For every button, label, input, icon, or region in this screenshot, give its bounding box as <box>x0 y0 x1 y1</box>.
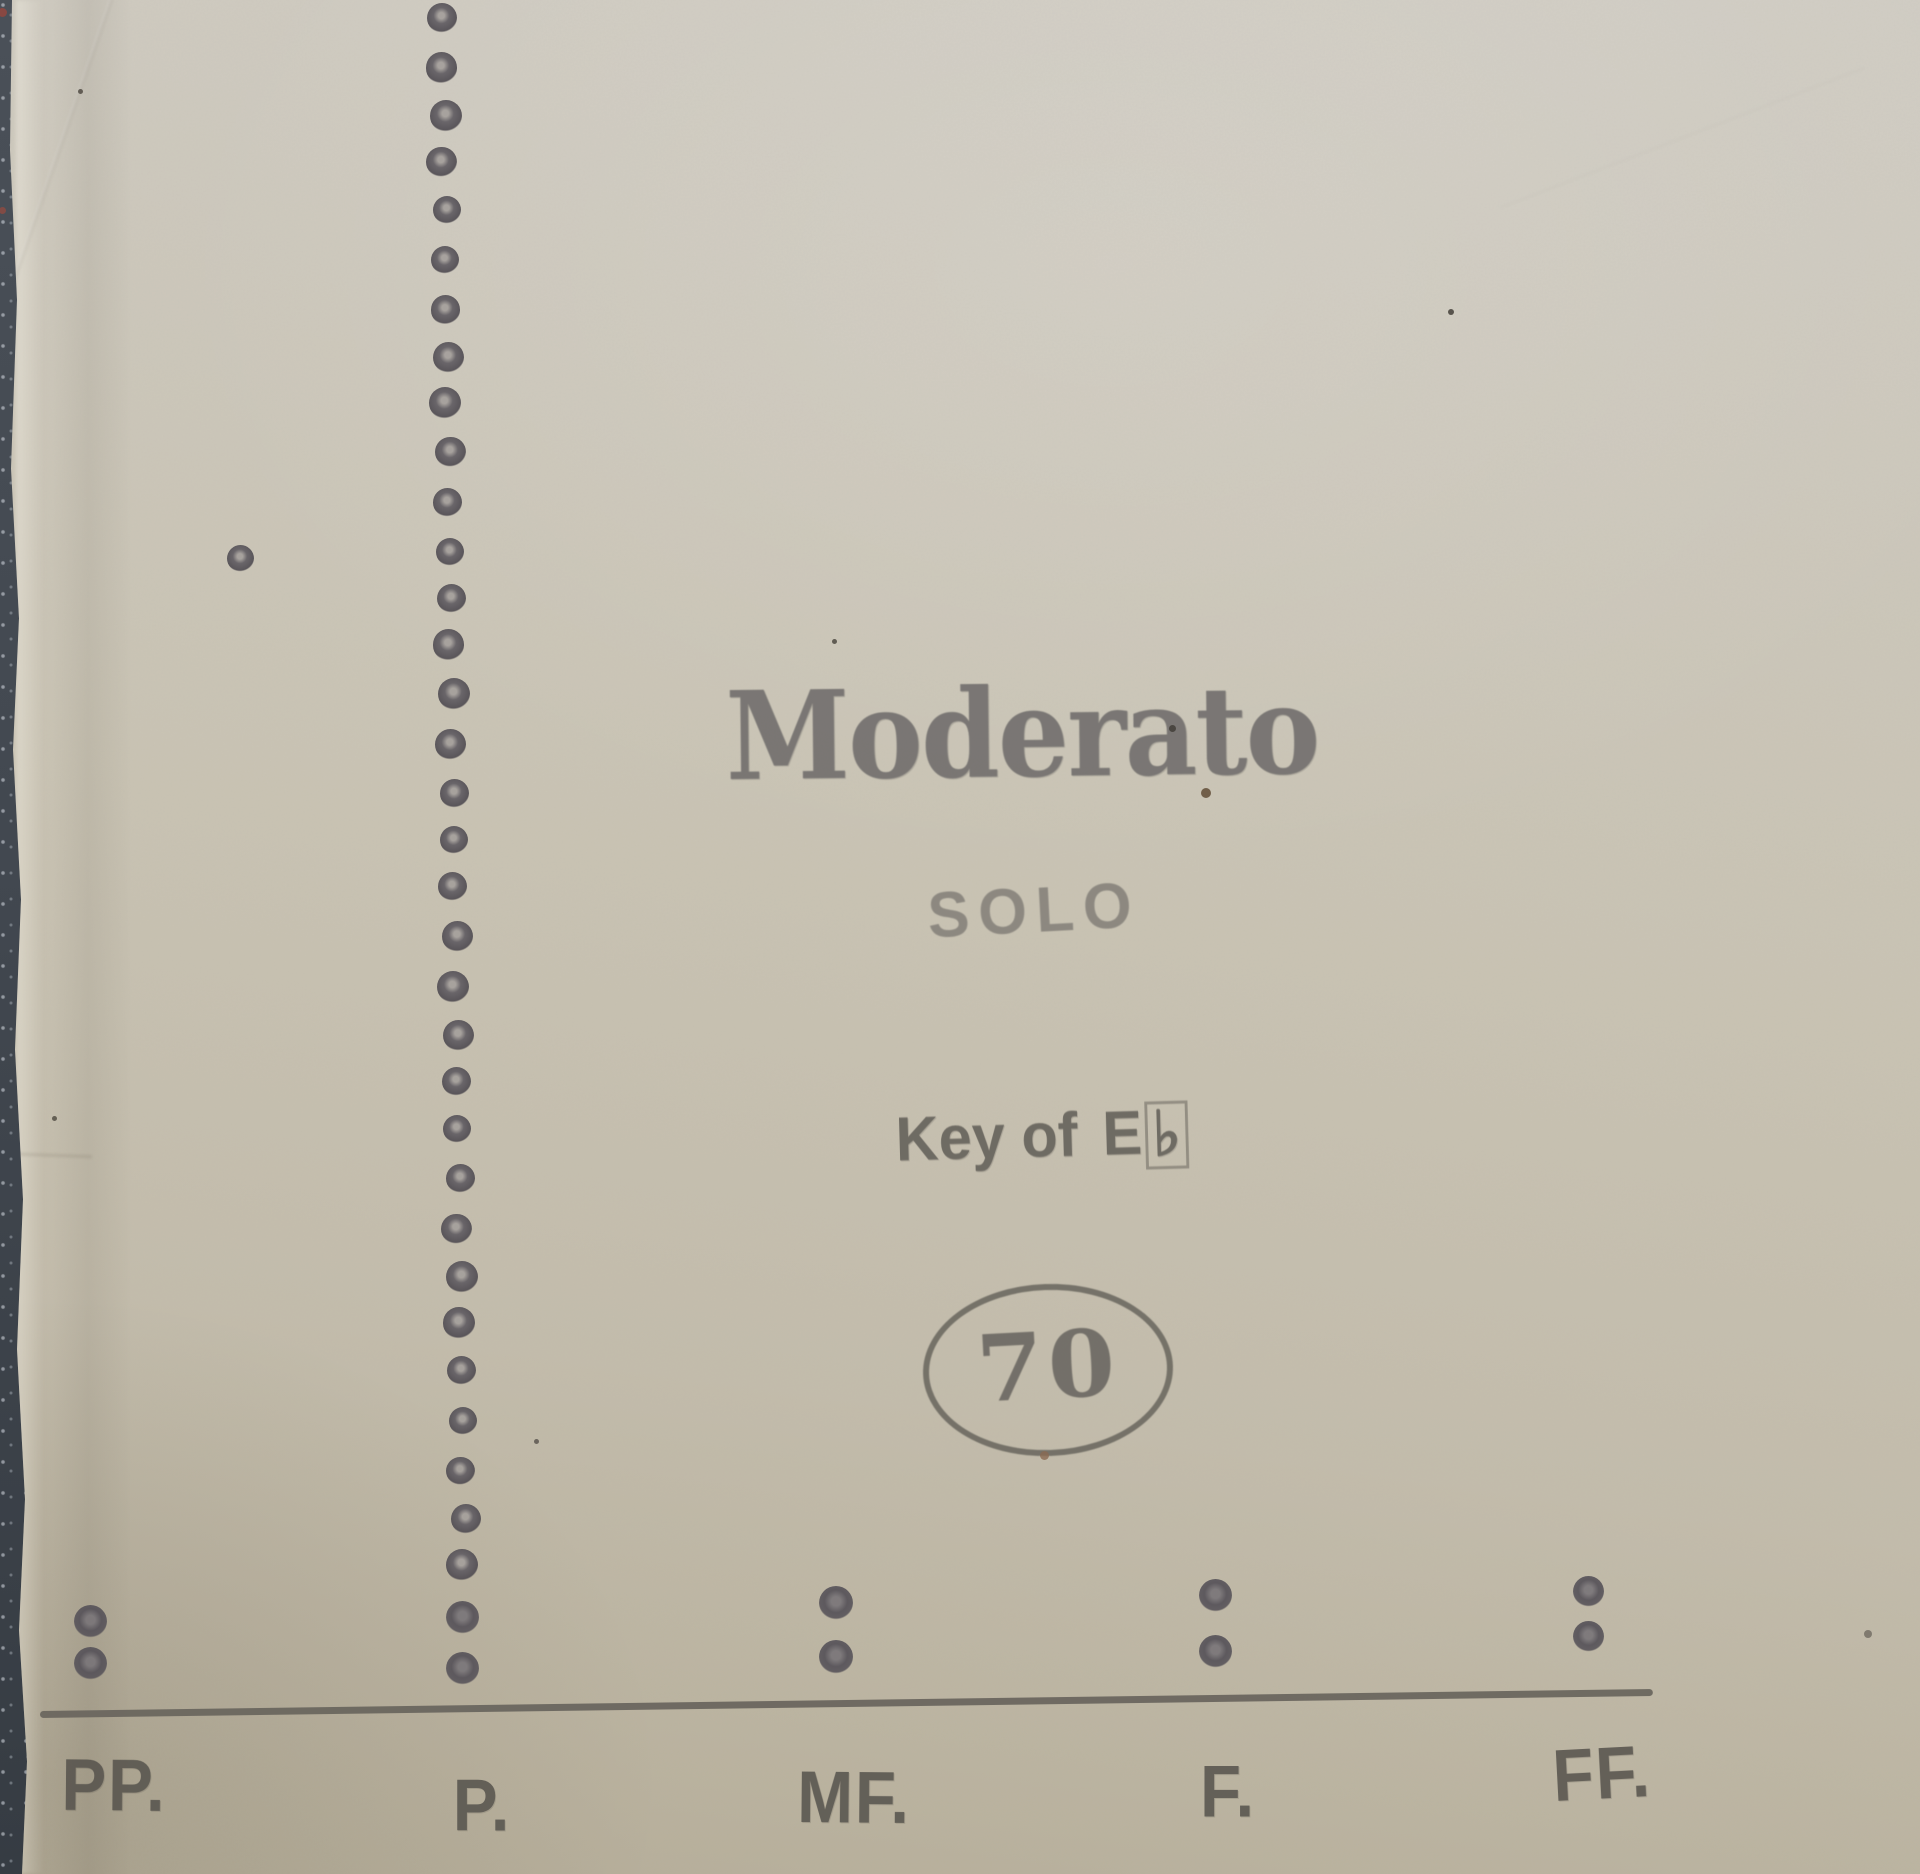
perforation-dot <box>440 779 469 808</box>
flat-glyph: ♭ <box>1152 1100 1182 1170</box>
perforation-dot <box>433 342 464 373</box>
paper-speck <box>534 1439 539 1444</box>
perforation-dot <box>429 387 461 419</box>
key-note-letter: E <box>1101 1099 1143 1169</box>
dynamics-label-pp: PP. <box>61 1744 167 1828</box>
perforation-dot <box>440 826 468 854</box>
dynamics-colon-dot <box>1573 1621 1604 1652</box>
perforation-dot <box>433 488 462 517</box>
stray-perforation-dot <box>227 545 254 572</box>
perforation-dot <box>443 1020 474 1051</box>
perforation-dot <box>438 872 467 901</box>
perforation-dot <box>449 1407 477 1435</box>
perforation-dot <box>426 52 458 84</box>
paper-speck <box>1864 1630 1872 1638</box>
perforation-dot <box>433 196 461 224</box>
perforation-dot <box>436 538 464 566</box>
edge-red-mark <box>0 207 6 214</box>
roll-number: 70 <box>974 1316 1122 1423</box>
dynamics-colon-dot <box>1573 1576 1604 1607</box>
edge-red-mark <box>0 8 7 17</box>
tempo-stamp: Moderato <box>725 658 1319 808</box>
dynamics-colon-dot <box>1199 1579 1232 1612</box>
perforation-dot <box>430 100 462 132</box>
perforation-dot <box>441 1214 472 1245</box>
perforation-dot <box>447 1356 477 1386</box>
perforation-dot <box>443 1307 474 1338</box>
perforation-dot <box>446 1164 475 1193</box>
perforation-dot <box>443 1115 471 1143</box>
vertical-fold-shading <box>52 0 132 1874</box>
perforation-dot <box>442 1067 471 1096</box>
perforation-dot <box>435 437 466 468</box>
perforation-dot <box>431 246 459 274</box>
perforation-dot <box>438 678 470 710</box>
perforation-dot <box>446 1549 478 1581</box>
key-prefix-text: Key of <box>895 1101 1079 1175</box>
paper-speck <box>1448 309 1454 315</box>
perforation-dot <box>427 3 457 33</box>
dynamics-colon-dot <box>819 1640 853 1674</box>
flat-sign: ♭ <box>1144 1100 1189 1169</box>
perforation-dot <box>426 147 456 177</box>
perforation-dot <box>437 971 469 1003</box>
paper-torn-edge-highlight <box>16 0 44 1874</box>
dynamics-colon-dot <box>819 1586 853 1620</box>
dynamics-baseline <box>40 1689 1653 1718</box>
perforation-dot <box>451 1504 481 1534</box>
perforation-dot <box>437 584 466 613</box>
paper-speck <box>832 639 837 644</box>
roll-number-oval: 70 <box>920 1280 1176 1461</box>
perforation-dot <box>446 1457 474 1485</box>
dynamics-label-mf: MF. <box>797 1756 911 1840</box>
dynamics-label-f: F. <box>1200 1751 1256 1834</box>
solo-stamp: SOLO <box>926 867 1143 952</box>
crease-top-right <box>1499 65 1864 208</box>
perforation-dot <box>431 295 461 325</box>
perforation-dot <box>433 629 464 660</box>
dynamics-colon-dot <box>446 1601 479 1634</box>
perforation-dot <box>446 1261 478 1293</box>
dynamics-label-ff: FF. <box>1551 1730 1654 1818</box>
key-stamp: Key ofE♭ <box>895 1096 1190 1175</box>
perforation-dot <box>435 729 466 760</box>
perforation-dot <box>442 921 473 952</box>
dynamics-colon-dot <box>1199 1635 1232 1668</box>
dynamics-label-p: P. <box>453 1765 511 1848</box>
dynamics-colon-dot <box>446 1652 479 1685</box>
piano-roll-paper: Moderato SOLO Key ofE♭ 70 PP.P.MF.F.FF. <box>0 0 1920 1874</box>
photo-of-piano-roll: Moderato SOLO Key ofE♭ 70 PP.P.MF.F.FF. <box>0 0 1920 1874</box>
